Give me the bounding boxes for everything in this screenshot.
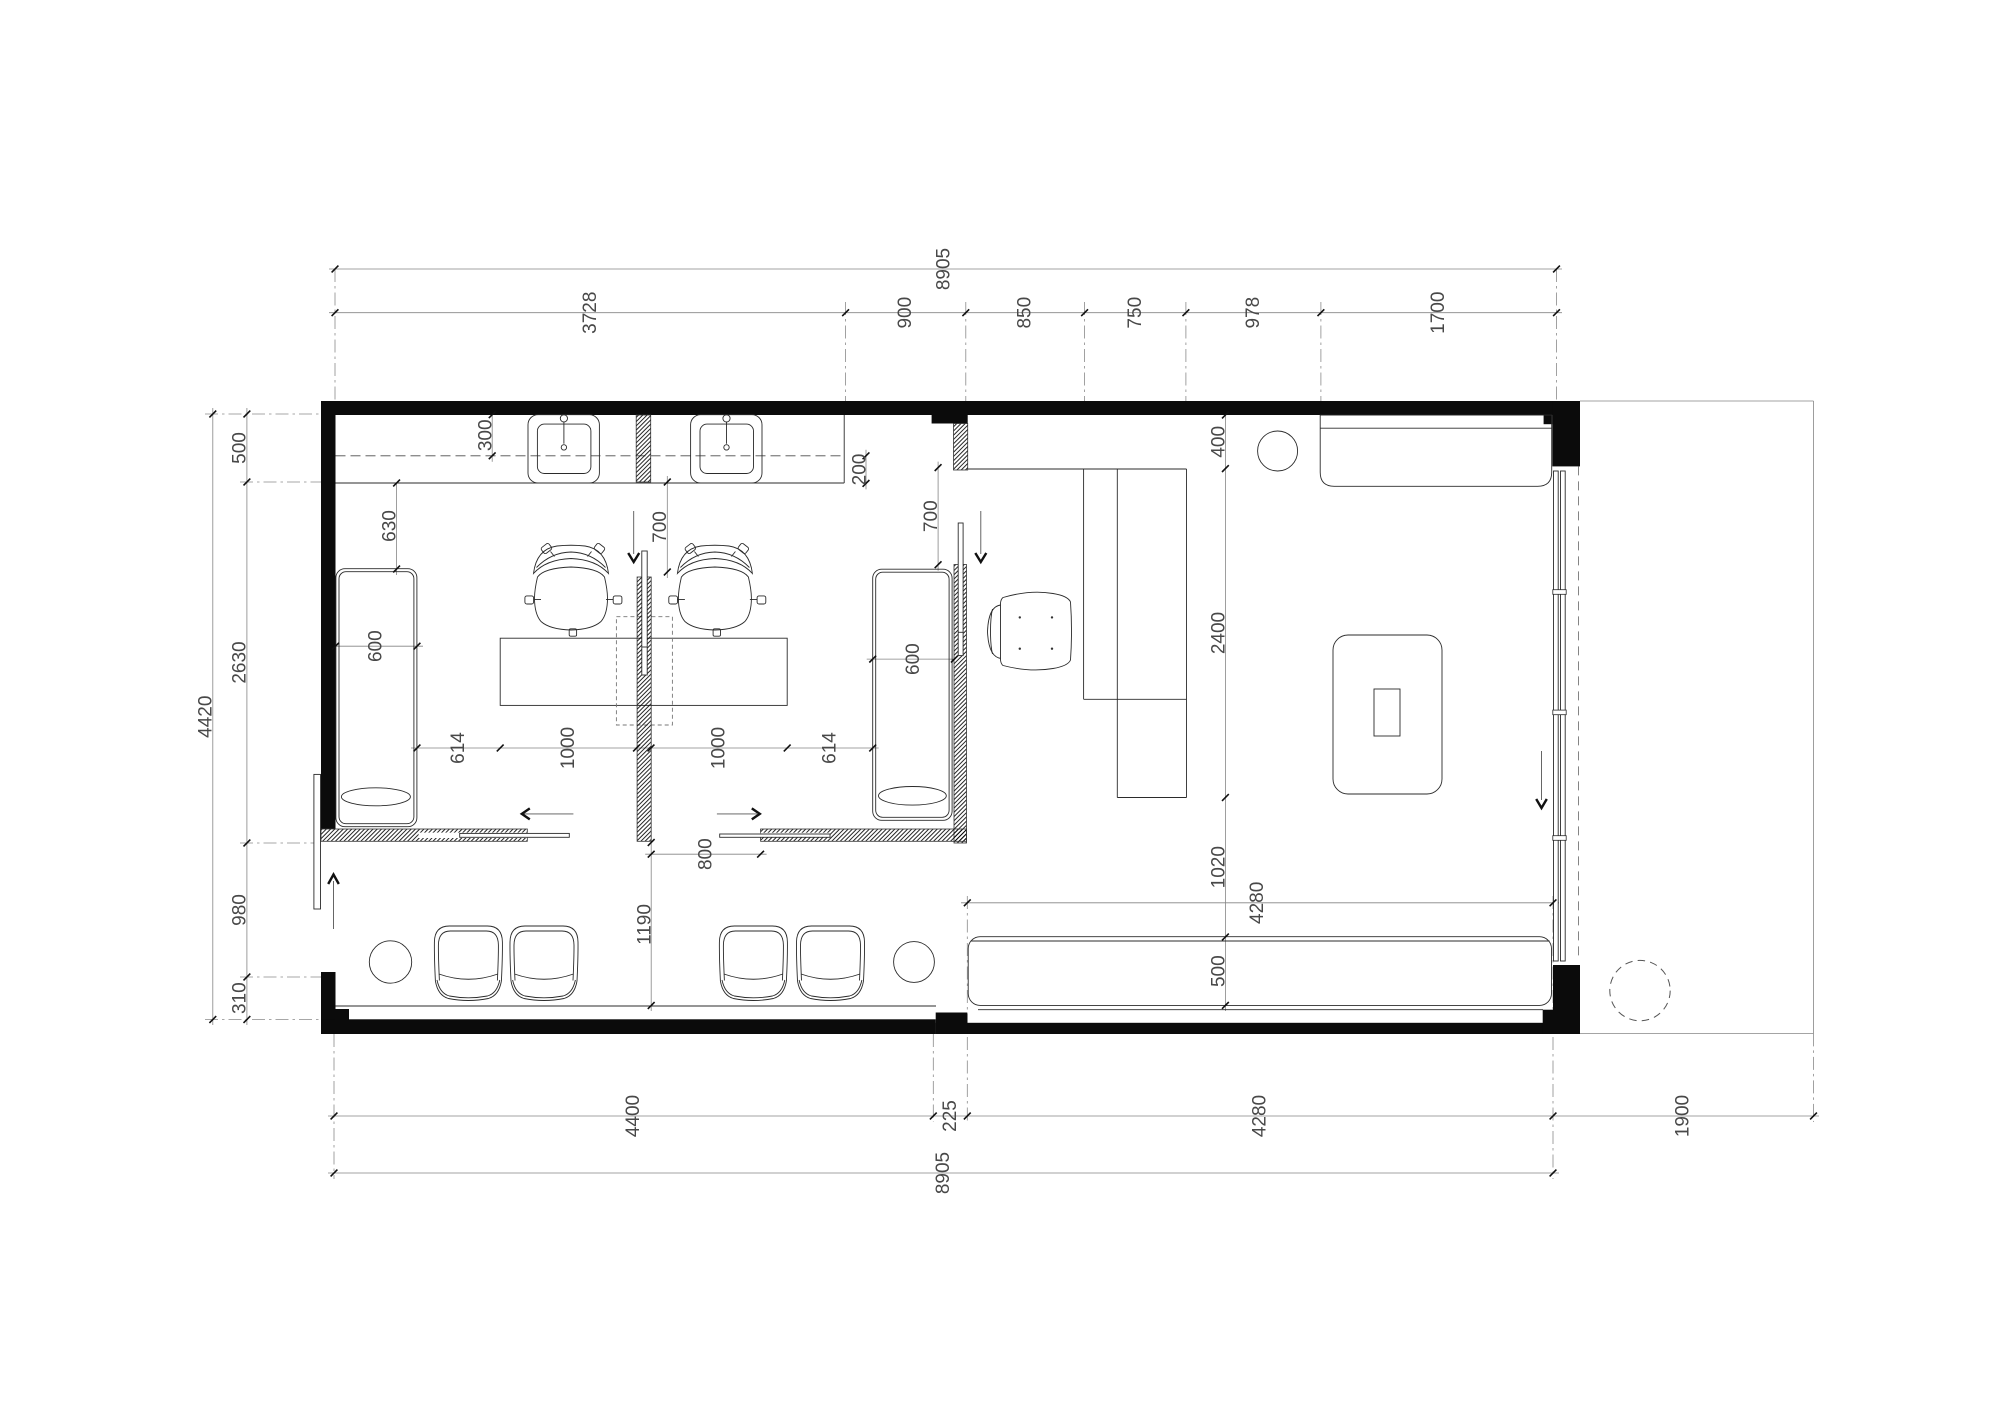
svg-text:750: 750 — [1125, 297, 1146, 329]
svg-text:3728: 3728 — [580, 292, 601, 334]
svg-text:900: 900 — [895, 297, 916, 329]
svg-text:600: 600 — [903, 643, 924, 675]
svg-text:980: 980 — [230, 894, 251, 926]
svg-text:614: 614 — [448, 732, 469, 764]
svg-text:4280: 4280 — [1250, 1095, 1271, 1137]
svg-text:978: 978 — [1243, 297, 1264, 329]
svg-text:630: 630 — [380, 510, 401, 542]
svg-text:850: 850 — [1015, 297, 1036, 329]
svg-text:1020: 1020 — [1208, 846, 1229, 888]
svg-text:800: 800 — [696, 838, 717, 870]
svg-text:2400: 2400 — [1208, 612, 1229, 654]
svg-text:4420: 4420 — [196, 696, 217, 738]
svg-text:310: 310 — [230, 982, 251, 1014]
svg-text:1000: 1000 — [558, 727, 579, 769]
svg-text:8905: 8905 — [933, 1152, 954, 1194]
svg-text:300: 300 — [476, 419, 497, 451]
svg-text:614: 614 — [820, 732, 841, 764]
svg-text:200: 200 — [849, 454, 870, 486]
svg-text:1000: 1000 — [709, 727, 730, 769]
svg-text:1900: 1900 — [1673, 1095, 1694, 1137]
svg-text:225: 225 — [940, 1100, 961, 1132]
svg-text:4400: 4400 — [623, 1095, 644, 1137]
svg-text:2630: 2630 — [230, 641, 251, 683]
svg-text:1700: 1700 — [1428, 292, 1449, 334]
svg-text:400: 400 — [1208, 426, 1229, 458]
svg-text:8905: 8905 — [934, 248, 955, 290]
svg-text:600: 600 — [366, 630, 387, 662]
svg-text:1190: 1190 — [635, 904, 656, 945]
svg-text:4280: 4280 — [1247, 882, 1268, 924]
svg-text:700: 700 — [650, 511, 671, 543]
svg-text:700: 700 — [921, 500, 942, 532]
svg-text:500: 500 — [230, 432, 251, 464]
svg-text:500: 500 — [1208, 955, 1229, 987]
